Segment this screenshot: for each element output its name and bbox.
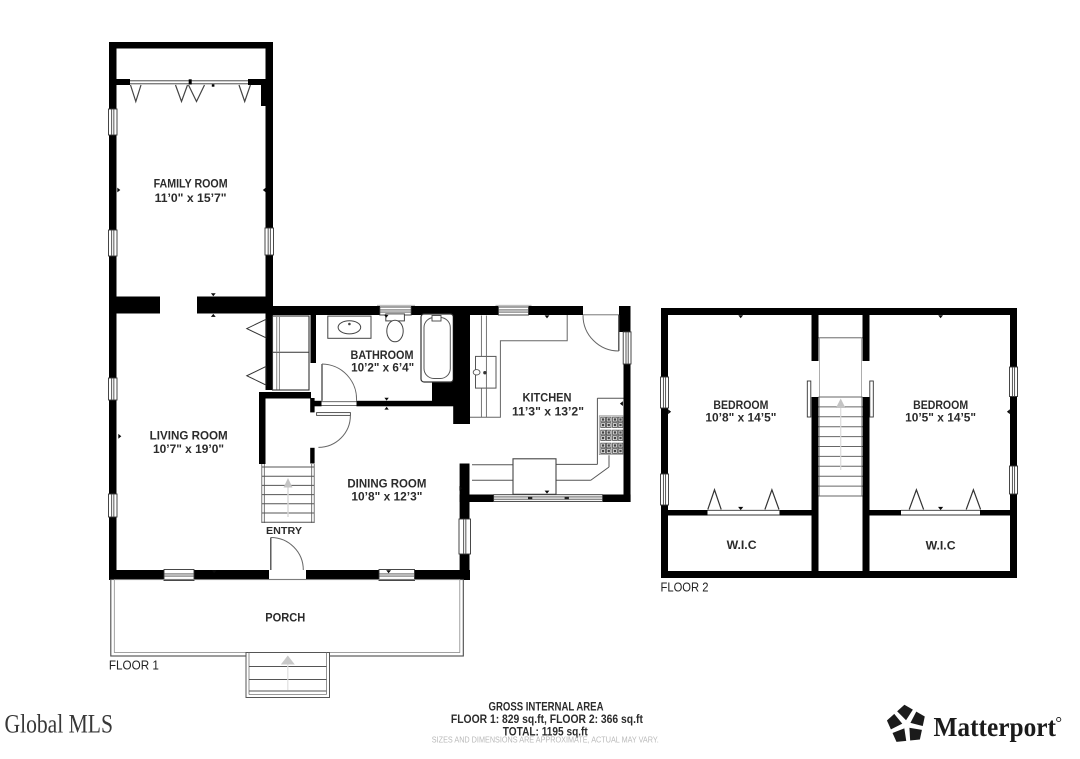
- svg-text:DINING ROOM: DINING ROOM: [347, 479, 426, 491]
- svg-text:11’0" x 15’7": 11’0" x 15’7": [155, 193, 227, 205]
- svg-text:10’7" x 19’0": 10’7" x 19’0": [153, 444, 224, 456]
- svg-text:LIVING ROOM: LIVING ROOM: [150, 431, 228, 443]
- svg-text:FAMILY ROOM: FAMILY ROOM: [154, 178, 228, 190]
- svg-text:SIZES AND DIMENSIONS ARE APPRO: SIZES AND DIMENSIONS ARE APPROXIMATE, AC…: [432, 736, 659, 745]
- svg-text:FLOOR 1: FLOOR 1: [109, 658, 159, 672]
- svg-text:BEDROOM: BEDROOM: [913, 400, 968, 412]
- svg-text:BATHROOM: BATHROOM: [351, 350, 414, 362]
- svg-text:10’8" x 14’5": 10’8" x 14’5": [705, 412, 776, 424]
- svg-text:KITCHEN: KITCHEN: [523, 393, 572, 405]
- svg-text:10’2" x 6’4": 10’2" x 6’4": [351, 363, 414, 375]
- svg-text:Global MLS: Global MLS: [5, 710, 114, 739]
- svg-text:W.I.C: W.I.C: [926, 540, 956, 552]
- svg-text:10’8" x 12’3": 10’8" x 12’3": [351, 491, 422, 503]
- svg-text:10’5" x 14’5": 10’5" x 14’5": [905, 412, 976, 424]
- svg-text:Matterport: Matterport: [934, 712, 1057, 742]
- svg-text:BEDROOM: BEDROOM: [713, 400, 768, 412]
- svg-text:W.I.C: W.I.C: [727, 540, 757, 552]
- svg-text:11’3" x 13’2": 11’3" x 13’2": [512, 407, 584, 419]
- svg-text:ENTRY: ENTRY: [266, 526, 302, 537]
- svg-text:FLOOR 2: FLOOR 2: [661, 581, 709, 595]
- svg-text:PORCH: PORCH: [265, 611, 305, 625]
